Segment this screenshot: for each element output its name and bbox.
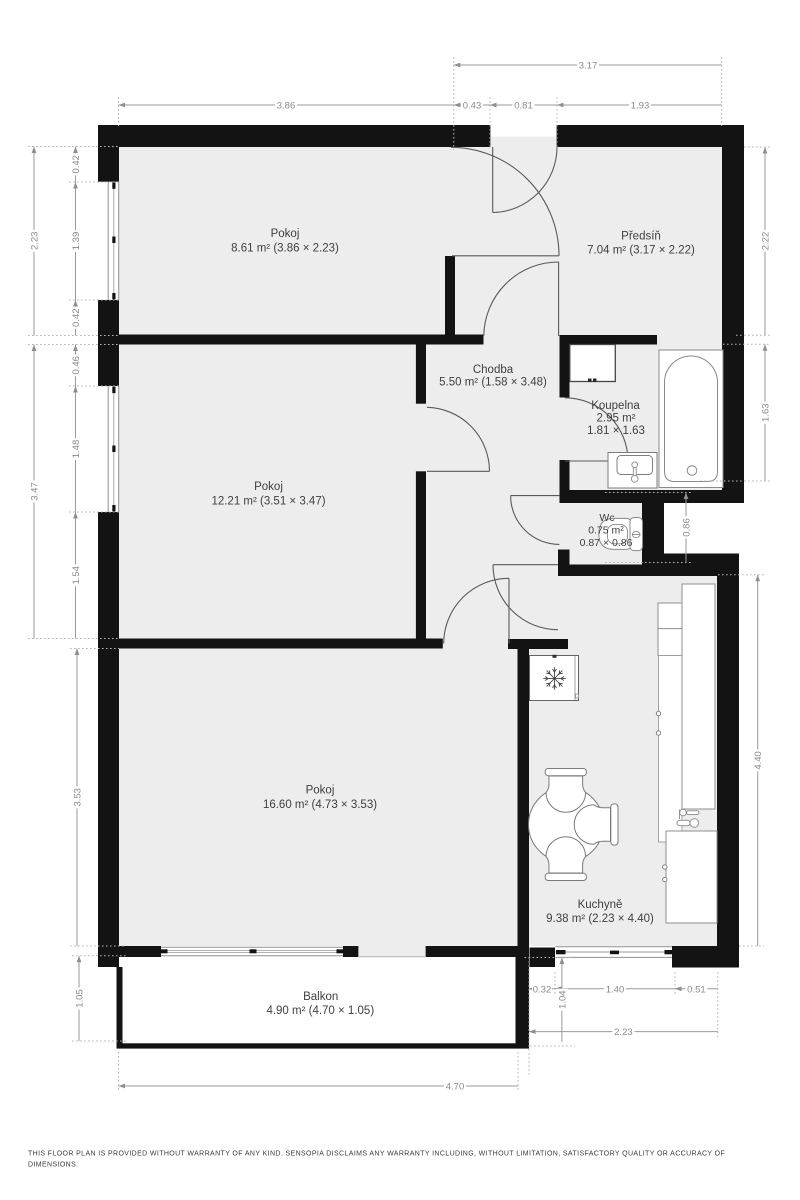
svg-text:0.43: 0.43: [463, 101, 482, 112]
svg-text:5.50 m² (1.58 × 3.48): 5.50 m² (1.58 × 3.48): [439, 377, 547, 389]
svg-text:1.81 × 1.63: 1.81 × 1.63: [587, 425, 645, 437]
svg-text:2.22: 2.22: [761, 232, 772, 251]
svg-text:Balkon: Balkon: [303, 991, 338, 1003]
svg-text:8.61 m² (3.86 × 2.23): 8.61 m² (3.86 × 2.23): [231, 243, 339, 255]
svg-text:0.86: 0.86: [682, 518, 693, 537]
svg-text:0.51: 0.51: [687, 984, 706, 995]
svg-text:4.90 m² (4.70 × 1.05): 4.90 m² (4.70 × 1.05): [266, 1005, 374, 1017]
svg-text:4.70: 4.70: [446, 1082, 465, 1093]
svg-text:THIS FLOOR PLAN IS PROVIDED WI: THIS FLOOR PLAN IS PROVIDED WITHOUT WARR…: [28, 1151, 725, 1158]
svg-text:Pokoj: Pokoj: [306, 785, 335, 797]
svg-text:1.93: 1.93: [631, 101, 650, 112]
svg-text:3.86: 3.86: [277, 101, 296, 112]
svg-text:Pokoj: Pokoj: [254, 481, 283, 493]
svg-text:0.42: 0.42: [71, 155, 82, 174]
svg-text:0.75 m²: 0.75 m²: [588, 525, 624, 537]
svg-text:1.40: 1.40: [606, 984, 625, 995]
svg-text:1.63: 1.63: [761, 403, 772, 422]
svg-text:Předsíň: Předsíň: [621, 231, 661, 243]
svg-text:Chodba: Chodba: [473, 364, 514, 376]
svg-text:3.47: 3.47: [30, 482, 41, 501]
svg-text:1.39: 1.39: [71, 232, 82, 251]
svg-text:2.23: 2.23: [30, 232, 41, 251]
svg-text:1.48: 1.48: [71, 440, 82, 459]
svg-text:1.54: 1.54: [71, 566, 82, 585]
svg-text:1.04: 1.04: [557, 990, 568, 1009]
svg-text:4.40: 4.40: [753, 751, 764, 770]
svg-text:2.95 m²: 2.95 m²: [597, 413, 636, 425]
svg-text:0.87 × 0.86: 0.87 × 0.86: [580, 537, 633, 549]
svg-text:2.23: 2.23: [614, 1027, 633, 1038]
svg-text:0.32: 0.32: [533, 984, 552, 995]
svg-text:7.04 m² (3.17 × 2.22): 7.04 m² (3.17 × 2.22): [587, 245, 695, 257]
svg-text:Pokoj: Pokoj: [271, 228, 300, 240]
svg-text:Koupelna: Koupelna: [591, 400, 640, 412]
svg-text:9.38 m² (2.23 × 4.40): 9.38 m² (2.23 × 4.40): [546, 913, 654, 925]
svg-text:16.60 m² (4.73 × 3.53): 16.60 m² (4.73 × 3.53): [263, 799, 377, 811]
svg-text:1.05: 1.05: [75, 989, 86, 1008]
svg-text:3.17: 3.17: [579, 61, 598, 72]
svg-text:Kuchyně: Kuchyně: [578, 899, 623, 911]
svg-text:0.81: 0.81: [514, 101, 533, 112]
svg-text:Wc: Wc: [599, 512, 614, 524]
svg-text:DIMENSIONS.: DIMENSIONS.: [28, 1162, 78, 1169]
svg-text:12.21 m² (3.51 × 3.47): 12.21 m² (3.51 × 3.47): [211, 495, 325, 507]
svg-text:0.46: 0.46: [71, 356, 82, 375]
svg-text:3.53: 3.53: [73, 788, 84, 807]
svg-text:0.42: 0.42: [71, 308, 82, 327]
